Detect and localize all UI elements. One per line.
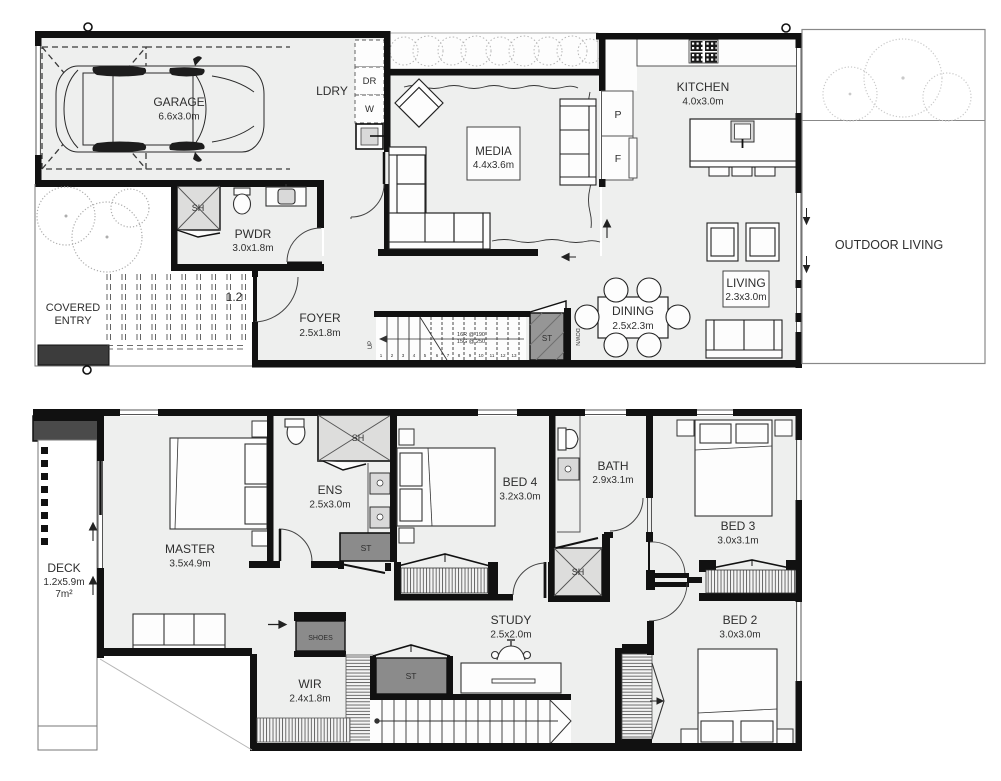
svg-text:KITCHEN: KITCHEN (677, 80, 730, 94)
svg-text:3.2x3.0m: 3.2x3.0m (499, 492, 540, 503)
svg-text:MASTER: MASTER (165, 542, 215, 556)
svg-text:7m²: 7m² (55, 589, 73, 600)
svg-text:ENTRY: ENTRY (54, 315, 92, 327)
svg-text:SH: SH (352, 433, 365, 443)
svg-text:BED 4: BED 4 (503, 475, 538, 489)
svg-text:STUDY: STUDY (491, 613, 532, 627)
svg-text:FOYER: FOYER (299, 311, 341, 325)
svg-text:15G @ 250: 15G @ 250 (457, 339, 485, 345)
svg-text:3.0x3.1m: 3.0x3.1m (717, 536, 758, 547)
svg-text:P: P (614, 109, 621, 121)
svg-text:3.0x1.8m: 3.0x1.8m (232, 243, 273, 254)
svg-text:2.5x3.0m: 2.5x3.0m (309, 500, 350, 511)
svg-text:COVERED: COVERED (46, 302, 100, 314)
svg-text:4.0x3.0m: 4.0x3.0m (682, 97, 723, 108)
svg-text:1.2: 1.2 (226, 290, 243, 304)
svg-text:6.6x3.0m: 6.6x3.0m (158, 112, 199, 123)
svg-text:2.5x1.8m: 2.5x1.8m (299, 328, 340, 339)
svg-text:PWDR: PWDR (235, 227, 272, 241)
svg-text:W: W (365, 104, 374, 115)
svg-text:DOWN: DOWN (574, 328, 580, 345)
svg-text:ST: ST (542, 334, 552, 343)
svg-text:OUTDOOR LIVING: OUTDOOR LIVING (835, 238, 943, 252)
svg-text:MEDIA: MEDIA (475, 146, 512, 158)
svg-text:DR: DR (363, 76, 377, 87)
svg-text:2.4x1.8m: 2.4x1.8m (289, 694, 330, 705)
svg-text:BED 3: BED 3 (721, 519, 756, 533)
svg-text:16R @ 190: 16R @ 190 (457, 332, 485, 338)
svg-text:11: 11 (490, 353, 495, 358)
svg-text:12: 12 (500, 353, 506, 358)
svg-text:2.3x3.0m: 2.3x3.0m (725, 292, 766, 303)
svg-text:SH: SH (192, 203, 205, 213)
svg-text:2.5x2.0m: 2.5x2.0m (490, 630, 531, 641)
svg-text:LIVING: LIVING (726, 276, 765, 290)
svg-text:SH: SH (572, 567, 585, 577)
svg-text:13: 13 (511, 353, 517, 358)
svg-text:WIR: WIR (298, 677, 322, 691)
svg-text:GARAGE: GARAGE (153, 95, 204, 109)
svg-text:DINING: DINING (612, 304, 654, 318)
svg-text:4.4x3.6m: 4.4x3.6m (473, 160, 514, 171)
svg-text:ST: ST (406, 671, 417, 681)
svg-text:DECK: DECK (47, 561, 80, 575)
svg-text:ENS: ENS (318, 483, 343, 497)
svg-text:1.2x5.9m: 1.2x5.9m (43, 577, 84, 588)
svg-text:UP: UP (368, 341, 374, 349)
svg-text:LDRY: LDRY (316, 84, 348, 98)
svg-text:3.5x4.9m: 3.5x4.9m (169, 559, 210, 570)
svg-text:2.5x2.3m: 2.5x2.3m (612, 321, 653, 332)
svg-text:BED 2: BED 2 (723, 613, 758, 627)
svg-text:10: 10 (478, 353, 484, 358)
svg-text:BATH: BATH (597, 459, 628, 473)
svg-text:F: F (615, 153, 621, 165)
svg-text:2.9x3.1m: 2.9x3.1m (592, 475, 633, 486)
svg-text:3.0x3.0m: 3.0x3.0m (719, 630, 760, 641)
svg-text:SHOES: SHOES (308, 635, 333, 642)
svg-text:ST: ST (361, 543, 372, 553)
